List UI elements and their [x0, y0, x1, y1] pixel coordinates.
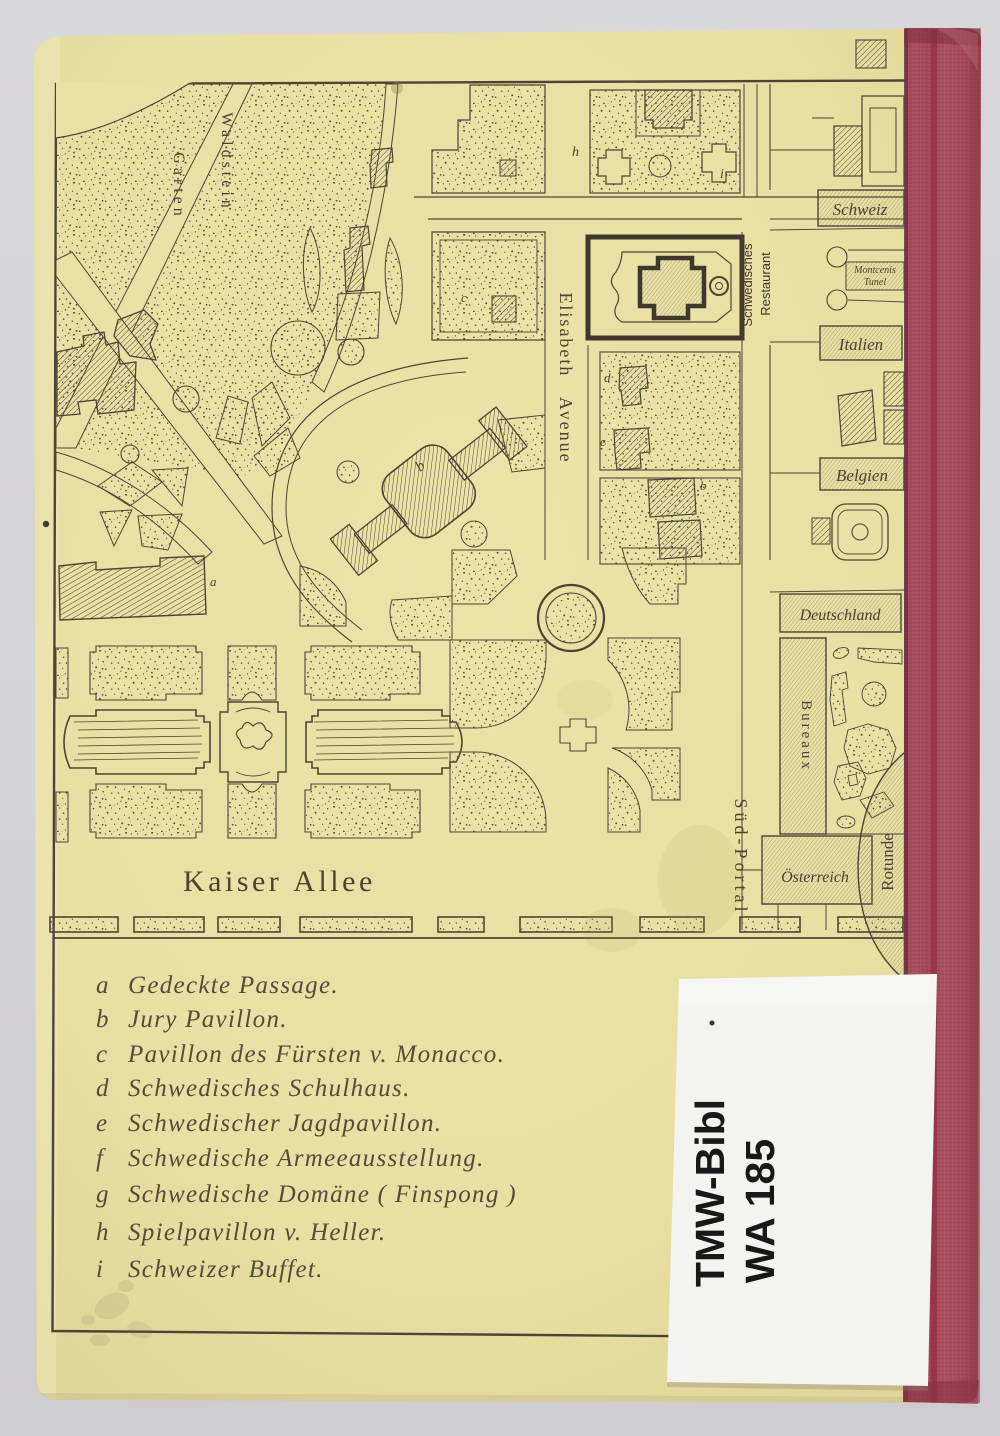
svg-text:Restaurant: Restaurant [758, 252, 773, 316]
svg-text:Elisabeth Avenue: Elisabeth Avenue [556, 292, 576, 463]
svg-text:i: i [720, 167, 724, 182]
svg-text:Pavillon des Fürsten v. Monacc: Pavillon des Fürsten v. Monacco. [127, 1041, 505, 1068]
svg-text:Rotunde: Rotunde [878, 833, 897, 891]
svg-text:Österreich: Österreich [781, 868, 849, 886]
svg-text:Schweiz: Schweiz [833, 200, 888, 219]
svg-text:Gedeckte Passage.: Gedeckte Passage. [128, 972, 339, 999]
svg-text:e: e [96, 1110, 107, 1137]
svg-text:i: i [96, 1256, 103, 1283]
svg-text:Deutschland: Deutschland [799, 607, 882, 624]
svg-text:Schwedische Armeeausstellung.: Schwedische Armeeausstellung. [128, 1145, 485, 1172]
svg-text:Bureaux: Bureaux [798, 700, 814, 772]
svg-text:Schwedisches Schulhaus.: Schwedisches Schulhaus. [128, 1075, 411, 1102]
svg-text:h: h [96, 1219, 109, 1246]
svg-text:e: e [600, 434, 606, 449]
svg-text:Belgien: Belgien [836, 466, 888, 485]
svg-text:Italien: Italien [838, 335, 883, 354]
svg-text:b: b [700, 478, 707, 493]
svg-text:a: a [96, 972, 109, 999]
svg-text:Tunel: Tunel [864, 277, 886, 288]
svg-text:h: h [572, 145, 579, 160]
svg-text:g: g [96, 1181, 109, 1208]
svg-text:Spielpavillon v. Heller.: Spielpavillon v. Heller. [128, 1219, 386, 1246]
svg-text:Schweizer Buffet.: Schweizer Buffet. [128, 1256, 324, 1283]
svg-text:a: a [210, 574, 217, 589]
svg-text:Kaiser Allee: Kaiser Allee [183, 865, 376, 898]
svg-text:WA 185: WA 185 [737, 1139, 783, 1283]
svg-text:Schwedischer Jagdpavillon.: Schwedischer Jagdpavillon. [128, 1110, 442, 1137]
svg-text:Waldstein: Waldstein [218, 112, 235, 212]
svg-text:c: c [96, 1041, 107, 1068]
svg-text:Jury Pavillon.: Jury Pavillon. [128, 1006, 288, 1033]
svg-text:TMW-Bibl: TMW-Bibl [687, 1099, 733, 1287]
svg-text:b: b [96, 1006, 109, 1033]
svg-text:Schwedische Domäne ( Finspong: Schwedische Domäne ( Finspong ) [128, 1181, 517, 1208]
svg-text:d: d [604, 370, 611, 385]
svg-text:c: c [461, 290, 467, 305]
svg-text:Garten: Garten [170, 152, 187, 220]
svg-text:d: d [96, 1075, 109, 1102]
svg-text:Montcenis: Montcenis [853, 265, 896, 276]
